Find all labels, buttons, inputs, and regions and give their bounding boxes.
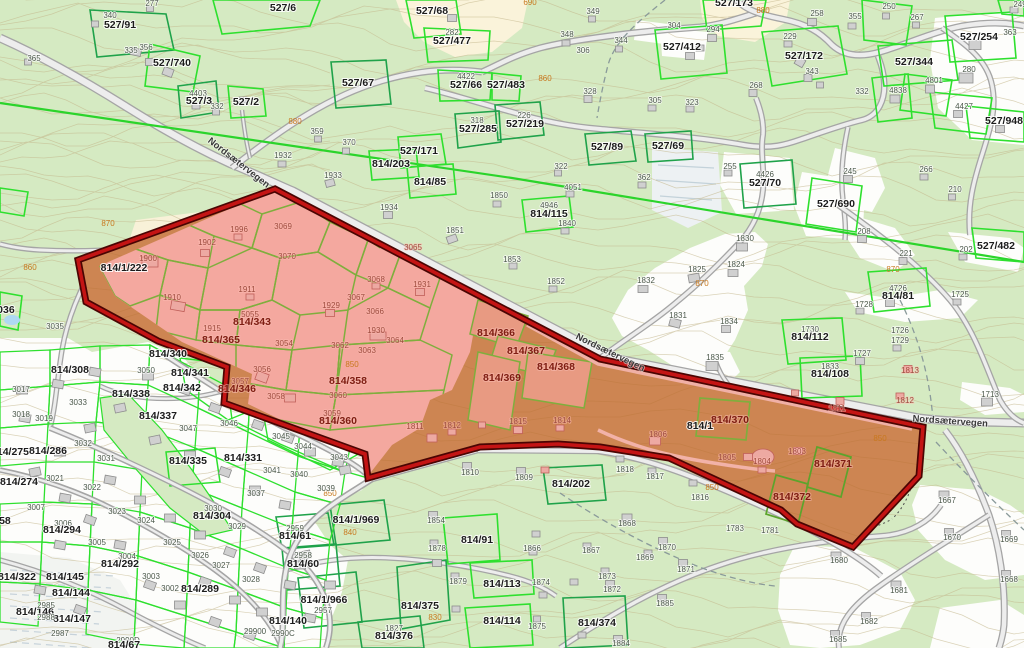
svg-text:2988: 2988: [37, 613, 55, 622]
svg-text:268: 268: [749, 81, 763, 90]
svg-text:1875: 1875: [528, 622, 546, 631]
svg-text:527/219: 527/219: [506, 118, 544, 130]
svg-text:814/67: 814/67: [108, 639, 140, 648]
svg-text:814/294: 814/294: [43, 524, 81, 536]
svg-text:1854: 1854: [427, 516, 445, 525]
svg-text:1783: 1783: [726, 524, 744, 533]
svg-text:2990C: 2990C: [271, 629, 295, 638]
svg-text:1812: 1812: [443, 421, 461, 430]
svg-text:3002: 3002: [161, 584, 179, 593]
svg-text:3066: 3066: [366, 307, 384, 316]
svg-text:814/308: 814/308: [51, 364, 89, 376]
svg-text:1813: 1813: [901, 366, 919, 375]
svg-text:1853: 1853: [503, 255, 521, 264]
svg-text:814/286: 814/286: [29, 445, 67, 457]
svg-text:1726: 1726: [891, 326, 909, 335]
svg-text:1812: 1812: [896, 396, 914, 405]
svg-text:221: 221: [899, 249, 913, 258]
svg-text:1811: 1811: [406, 422, 424, 431]
svg-text:362: 362: [637, 173, 651, 182]
svg-text:3024: 3024: [137, 516, 155, 525]
svg-text:343: 343: [805, 67, 819, 76]
svg-text:814/346: 814/346: [218, 383, 256, 395]
svg-text:814/335: 814/335: [169, 455, 207, 467]
svg-text:3032: 3032: [74, 439, 92, 448]
svg-text:3068: 3068: [367, 275, 385, 284]
svg-text:1868: 1868: [618, 519, 636, 528]
svg-text:359: 359: [310, 127, 324, 136]
svg-text:3039: 3039: [317, 484, 335, 493]
svg-text:277: 277: [145, 0, 159, 8]
svg-text:3041: 3041: [263, 466, 281, 475]
svg-text:527/483: 527/483: [487, 79, 525, 91]
svg-text:527/948: 527/948: [985, 115, 1023, 127]
svg-text:363: 363: [1003, 28, 1017, 37]
svg-text:1816: 1816: [691, 493, 709, 502]
svg-text:356: 356: [139, 43, 153, 52]
svg-text:527/70: 527/70: [749, 177, 781, 189]
svg-text:1931: 1931: [413, 280, 431, 289]
svg-text:294: 294: [706, 25, 720, 34]
svg-text:1929: 1929: [322, 301, 340, 310]
svg-text:814/367: 814/367: [507, 345, 545, 357]
svg-text:814/371: 814/371: [814, 458, 852, 470]
svg-text:1669: 1669: [1000, 535, 1018, 544]
svg-text:1680: 1680: [830, 556, 848, 565]
svg-text:527/482: 527/482: [977, 240, 1015, 252]
svg-text:1806: 1806: [649, 430, 667, 439]
svg-text:1834: 1834: [720, 317, 738, 326]
svg-text:3069: 3069: [274, 222, 292, 231]
svg-text:3035: 3035: [46, 322, 64, 331]
svg-text:814/60: 814/60: [287, 558, 319, 570]
svg-text:814/1: 814/1: [687, 420, 713, 432]
svg-text:210: 210: [948, 185, 962, 194]
svg-text:814/91: 814/91: [461, 534, 493, 546]
svg-text:814/338: 814/338: [112, 388, 150, 400]
svg-text:3067: 3067: [347, 293, 365, 302]
svg-text:1932: 1932: [274, 151, 292, 160]
svg-text:1831: 1831: [669, 311, 687, 320]
svg-text:3022: 3022: [83, 483, 101, 492]
svg-text:814/274: 814/274: [0, 476, 38, 488]
svg-text:1879: 1879: [449, 577, 467, 586]
svg-text:2985: 2985: [37, 601, 55, 610]
svg-text:814/370: 814/370: [711, 414, 749, 426]
svg-text:1996: 1996: [230, 225, 248, 234]
svg-text:3037: 3037: [247, 489, 265, 498]
svg-text:850: 850: [345, 360, 359, 369]
svg-text:527/3: 527/3: [186, 95, 212, 107]
svg-text:2987: 2987: [51, 629, 69, 638]
svg-text:306: 306: [576, 46, 590, 55]
svg-text:328: 328: [583, 87, 597, 96]
svg-text:1869: 1869: [636, 553, 654, 562]
svg-text:3050: 3050: [137, 366, 155, 375]
svg-text:1825: 1825: [688, 265, 706, 274]
svg-text:1727: 1727: [853, 349, 871, 358]
svg-text:527/66: 527/66: [450, 79, 482, 91]
svg-text:355: 355: [848, 12, 862, 21]
svg-text:1681: 1681: [890, 586, 908, 595]
svg-text:3058: 3058: [267, 392, 285, 401]
svg-text:3021: 3021: [46, 474, 64, 483]
svg-text:266: 266: [919, 165, 933, 174]
svg-text:3063: 3063: [358, 346, 376, 355]
svg-text:527/172: 527/172: [785, 50, 823, 62]
svg-text:1685: 1685: [829, 635, 847, 644]
svg-text:1728: 1728: [855, 300, 873, 309]
svg-text:814/322: 814/322: [0, 571, 36, 583]
svg-text:3064: 3064: [386, 336, 404, 345]
svg-text:3028: 3028: [242, 575, 260, 584]
svg-text:814/368: 814/368: [537, 361, 575, 373]
svg-text:527/344: 527/344: [895, 56, 933, 68]
svg-text:1781: 1781: [761, 526, 779, 535]
svg-text:3045: 3045: [272, 432, 290, 441]
svg-text:870: 870: [101, 219, 115, 228]
svg-text:1832: 1832: [637, 276, 655, 285]
svg-text:814/1/966: 814/1/966: [301, 594, 348, 606]
svg-text:1713: 1713: [981, 390, 999, 399]
svg-text:1803: 1803: [788, 447, 806, 456]
svg-text:344: 344: [614, 36, 628, 45]
svg-text:3031: 3031: [97, 454, 115, 463]
svg-text:814/289: 814/289: [181, 583, 219, 595]
svg-text:3023: 3023: [108, 507, 126, 516]
svg-text:527/91: 527/91: [104, 19, 136, 31]
svg-text:1934: 1934: [380, 203, 398, 212]
svg-text:1910: 1910: [163, 293, 181, 302]
svg-text:323: 323: [685, 98, 699, 107]
svg-text:348: 348: [560, 30, 574, 39]
svg-text:814/108: 814/108: [811, 368, 849, 380]
svg-text:3025: 3025: [163, 538, 181, 547]
svg-text:3007: 3007: [27, 503, 45, 512]
svg-text:258: 258: [810, 9, 824, 18]
svg-text:340: 340: [103, 11, 117, 20]
svg-text:1915: 1915: [203, 324, 221, 333]
svg-text:850: 850: [705, 483, 719, 492]
svg-text:814/369: 814/369: [483, 372, 521, 384]
svg-text:3070: 3070: [278, 252, 296, 261]
svg-text:3062: 3062: [331, 341, 349, 350]
svg-text:3019: 3019: [35, 414, 53, 423]
svg-text:527/173: 527/173: [715, 0, 753, 9]
svg-text:1725: 1725: [951, 290, 969, 299]
svg-text:1867: 1867: [582, 546, 600, 555]
svg-text:365: 365: [27, 54, 41, 63]
svg-text:304: 304: [667, 21, 681, 30]
svg-text:267: 267: [910, 13, 924, 22]
svg-text:870: 870: [695, 279, 709, 288]
svg-text:3056: 3056: [253, 365, 271, 374]
svg-text:860: 860: [23, 263, 37, 272]
svg-text:814/337: 814/337: [139, 410, 177, 422]
svg-text:1874: 1874: [532, 578, 550, 587]
svg-text:1729: 1729: [891, 336, 909, 345]
svg-text:527/285: 527/285: [459, 123, 497, 135]
svg-text:29900: 29900: [244, 627, 267, 636]
svg-text:1815: 1815: [509, 417, 527, 426]
svg-text:1811: 1811: [828, 404, 846, 413]
svg-text:249: 249: [1013, 0, 1024, 9]
svg-text:527/740: 527/740: [153, 57, 191, 69]
svg-text:814/343: 814/343: [233, 316, 271, 328]
svg-text:830: 830: [428, 613, 442, 622]
svg-text:814/366: 814/366: [477, 327, 515, 339]
svg-text:322: 322: [554, 162, 568, 171]
svg-text:814/203: 814/203: [372, 158, 410, 170]
svg-text:1933: 1933: [324, 171, 342, 180]
svg-text:814/112: 814/112: [791, 331, 829, 343]
svg-text:1835: 1835: [706, 353, 724, 362]
svg-text:1670: 1670: [943, 533, 961, 542]
svg-text:814/331: 814/331: [224, 452, 262, 464]
svg-text:814/114: 814/114: [483, 615, 521, 627]
svg-text:814/61: 814/61: [279, 530, 311, 542]
svg-text:1930: 1930: [367, 326, 385, 335]
svg-text:255: 255: [723, 162, 737, 171]
svg-text:814/365: 814/365: [202, 334, 240, 346]
svg-text:370: 370: [342, 138, 356, 147]
svg-text:1902: 1902: [198, 238, 216, 247]
svg-text:3029: 3029: [228, 522, 246, 531]
svg-text:3027: 3027: [212, 561, 230, 570]
svg-text:690: 690: [523, 0, 537, 7]
svg-text:1866: 1866: [523, 544, 541, 553]
svg-text:1824: 1824: [727, 260, 745, 269]
svg-text:3033: 3033: [69, 398, 87, 407]
svg-text:1830: 1830: [736, 234, 754, 243]
svg-text:814/85: 814/85: [414, 176, 446, 188]
svg-text:349: 349: [586, 7, 600, 16]
svg-text:4427: 4427: [955, 102, 973, 111]
svg-text:814/144: 814/144: [52, 587, 90, 599]
svg-text:814/113: 814/113: [483, 578, 521, 590]
svg-text:1871: 1871: [677, 565, 695, 574]
svg-text:3003: 3003: [142, 572, 160, 581]
svg-text:1911: 1911: [238, 285, 256, 294]
svg-text:814/360: 814/360: [319, 415, 357, 427]
svg-text:208: 208: [857, 227, 871, 236]
svg-text:1850: 1850: [490, 191, 508, 200]
svg-text:814/375: 814/375: [401, 600, 439, 612]
svg-text:860: 860: [538, 74, 552, 83]
svg-text:3044: 3044: [294, 442, 312, 451]
svg-text:1809: 1809: [515, 473, 533, 482]
svg-text:3040: 3040: [290, 470, 308, 479]
svg-text:202: 202: [959, 245, 973, 254]
svg-text:1817: 1817: [646, 472, 664, 481]
svg-text:4838: 4838: [889, 86, 907, 95]
svg-text:1814: 1814: [553, 416, 571, 425]
svg-text:280: 280: [962, 65, 976, 74]
svg-text:527/2: 527/2: [233, 96, 259, 108]
svg-text:1872: 1872: [603, 585, 621, 594]
svg-text:3065: 3065: [404, 243, 422, 252]
svg-text:527/68: 527/68: [416, 5, 448, 17]
svg-text:1851: 1851: [446, 226, 464, 235]
svg-text:3005: 3005: [88, 538, 106, 547]
svg-text:814/1/969: 814/1/969: [333, 514, 380, 526]
svg-text:3043: 3043: [330, 453, 348, 462]
svg-text:814/372: 814/372: [773, 491, 811, 503]
svg-text:3018: 3018: [12, 410, 30, 419]
svg-text:814/81: 814/81: [882, 290, 914, 302]
svg-text:527/69: 527/69: [652, 140, 684, 152]
svg-text:305: 305: [648, 96, 662, 105]
svg-text:814/140: 814/140: [269, 615, 307, 627]
svg-text:4051: 4051: [564, 183, 582, 192]
svg-text:527/690: 527/690: [817, 198, 855, 210]
svg-text:332: 332: [210, 102, 224, 111]
svg-text:527/254: 527/254: [960, 31, 998, 43]
svg-text:1682: 1682: [860, 617, 878, 626]
svg-text:840: 840: [343, 528, 357, 537]
svg-text:814/340: 814/340: [149, 348, 187, 360]
svg-text:814/202: 814/202: [552, 478, 590, 490]
svg-text:814/358: 814/358: [329, 375, 367, 387]
svg-text:814/376: 814/376: [375, 630, 413, 642]
svg-text:880: 880: [756, 6, 770, 15]
svg-text:1668: 1668: [1000, 575, 1018, 584]
svg-text:3026: 3026: [191, 551, 209, 560]
svg-text:1805: 1805: [718, 453, 736, 462]
svg-text:527/171: 527/171: [400, 145, 438, 157]
svg-text:1873: 1873: [598, 572, 616, 581]
svg-text:527/6: 527/6: [270, 2, 296, 14]
svg-text:1870: 1870: [658, 543, 676, 552]
svg-text:1810: 1810: [461, 468, 479, 477]
svg-text:2957: 2957: [314, 606, 332, 615]
svg-text:814/342: 814/342: [163, 382, 201, 394]
svg-text:1885: 1885: [656, 599, 674, 608]
svg-text:3047: 3047: [179, 424, 197, 433]
svg-text:1804: 1804: [753, 457, 771, 466]
svg-text:814/304: 814/304: [193, 510, 231, 522]
svg-text:1818: 1818: [616, 465, 634, 474]
svg-text:814/374: 814/374: [578, 617, 616, 629]
svg-text:1852: 1852: [547, 277, 565, 286]
svg-text:880: 880: [288, 117, 302, 126]
svg-text:335: 335: [124, 46, 138, 55]
svg-text:3036: 3036: [0, 304, 15, 316]
svg-text:814/292: 814/292: [101, 558, 139, 570]
svg-text:870: 870: [886, 265, 900, 274]
svg-text:814/275: 814/275: [0, 446, 29, 458]
svg-text:1667: 1667: [938, 496, 956, 505]
svg-text:527/477: 527/477: [433, 35, 471, 47]
svg-text:332: 332: [855, 87, 869, 96]
svg-text:814/1/222: 814/1/222: [101, 262, 148, 274]
svg-text:3060: 3060: [329, 391, 347, 400]
svg-text:1878: 1878: [428, 544, 446, 553]
svg-text:158: 158: [0, 515, 11, 527]
svg-text:527/89: 527/89: [591, 141, 623, 153]
svg-text:814/341: 814/341: [171, 367, 209, 379]
svg-text:527/412: 527/412: [663, 41, 701, 53]
svg-text:3054: 3054: [275, 339, 293, 348]
svg-text:229: 229: [783, 32, 797, 41]
svg-text:1884: 1884: [612, 639, 630, 648]
svg-text:814/145: 814/145: [46, 571, 84, 583]
svg-text:3046: 3046: [220, 419, 238, 428]
svg-text:245: 245: [843, 167, 857, 176]
svg-text:1840: 1840: [558, 219, 576, 228]
svg-text:250: 250: [882, 2, 896, 11]
svg-text:527/67: 527/67: [342, 77, 374, 89]
svg-text:3017: 3017: [12, 385, 30, 394]
svg-text:850: 850: [873, 434, 887, 443]
svg-text:4801: 4801: [925, 76, 943, 85]
svg-text:814/147: 814/147: [53, 613, 91, 625]
